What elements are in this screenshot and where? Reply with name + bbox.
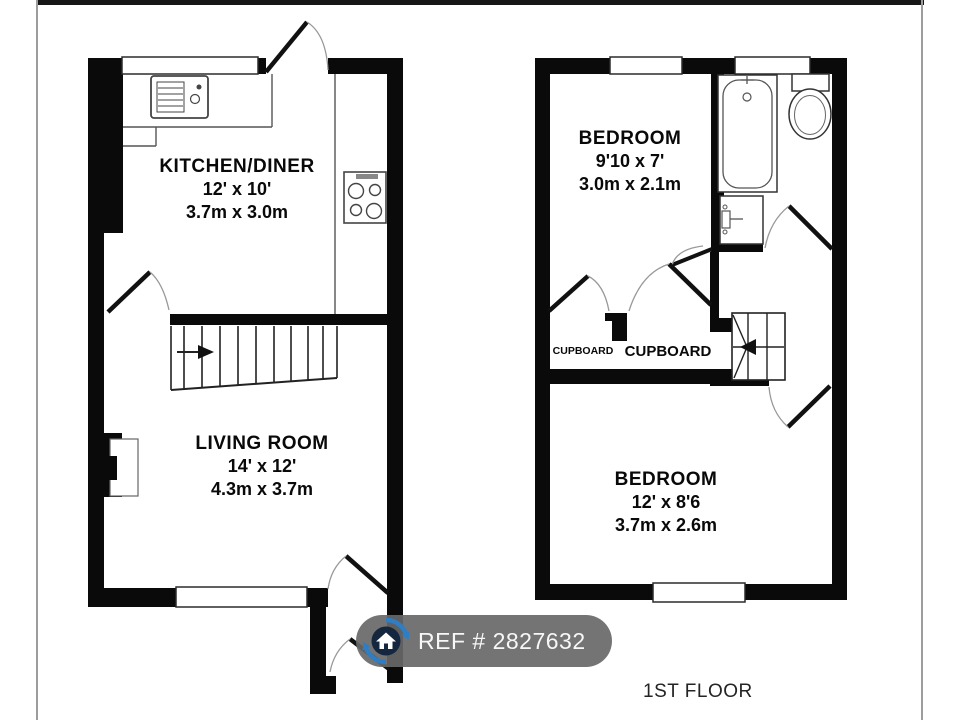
cupboard1-door-arc xyxy=(588,276,609,311)
bathroom-door-arc xyxy=(765,206,789,248)
kitchen-sink xyxy=(151,76,208,118)
bedroom2-door-leaf xyxy=(788,386,830,427)
back-door-leaf xyxy=(266,22,307,72)
ground-floor-plan xyxy=(88,22,403,694)
first-floor-doors xyxy=(549,206,832,427)
bedroom2-metric: 3.7m x 2.6m xyxy=(566,514,766,537)
living-room-name: LIVING ROOM xyxy=(162,432,362,455)
cupboard2-door-arc xyxy=(629,264,669,311)
bedroom2-label: BEDROOM 12' x 8'6 3.7m x 2.6m xyxy=(566,468,766,537)
bedroom2-door-arc xyxy=(769,387,788,427)
bedroom1-door-leaf xyxy=(672,249,712,265)
bedroom1-label: BEDROOM 9'10 x 7' 3.0m x 2.1m xyxy=(530,127,730,196)
front-door-arc xyxy=(330,639,350,672)
cupboard2-label: CUPBOARD xyxy=(608,343,728,360)
cupboard1-door-leaf xyxy=(549,276,588,311)
living-room-window xyxy=(176,587,307,607)
floorplan-drawing xyxy=(0,0,960,720)
living-room-metric: 4.3m x 3.7m xyxy=(162,478,362,501)
bathroom-window xyxy=(735,57,810,74)
bedroom2-window xyxy=(653,583,745,602)
living-room-imperial: 14' x 12' xyxy=(162,455,362,478)
kitchen-label: KITCHEN/DINER 12' x 10' 3.7m x 3.0m xyxy=(137,155,337,224)
sink-basin xyxy=(720,196,763,244)
ground-floor-staircase xyxy=(171,326,337,390)
toilet xyxy=(789,74,831,139)
bedroom1-name: BEDROOM xyxy=(530,127,730,150)
bedroom2-imperial: 12' x 8'6 xyxy=(566,491,766,514)
bedroom1-metric: 3.0m x 2.1m xyxy=(530,173,730,196)
stairs-up-arrow xyxy=(198,345,214,359)
bathroom-door-leaf xyxy=(789,206,832,249)
bedroom2-name: BEDROOM xyxy=(566,468,766,491)
kitchen-imperial: 12' x 10' xyxy=(137,178,337,201)
stove xyxy=(344,172,386,223)
living-room-door-leaf xyxy=(346,556,388,593)
bedroom1-window xyxy=(610,57,682,74)
kitchen-door-arc xyxy=(150,272,169,310)
bedroom1-imperial: 9'10 x 7' xyxy=(530,150,730,173)
home-icon xyxy=(357,612,415,670)
floor-title: 1ST FLOOR xyxy=(643,681,753,703)
kitchen-name: KITCHEN/DINER xyxy=(137,155,337,178)
floorplan-page: { "ground_floor": { "kitchen": { "name":… xyxy=(0,0,960,720)
kitchen-metric: 3.7m x 3.0m xyxy=(137,201,337,224)
ref-number: REF # 2827632 xyxy=(418,628,586,655)
back-door-arc xyxy=(307,22,328,70)
cupboard2-door-leaf xyxy=(669,264,711,305)
living-room-label: LIVING ROOM 14' x 12' 4.3m x 3.7m xyxy=(162,432,362,501)
ground-floor-doors xyxy=(108,22,389,672)
living-room-door-arc xyxy=(328,556,346,589)
kitchen-window xyxy=(122,57,258,74)
kitchen-door-leaf xyxy=(108,272,150,312)
first-floor-staircase xyxy=(732,313,785,380)
